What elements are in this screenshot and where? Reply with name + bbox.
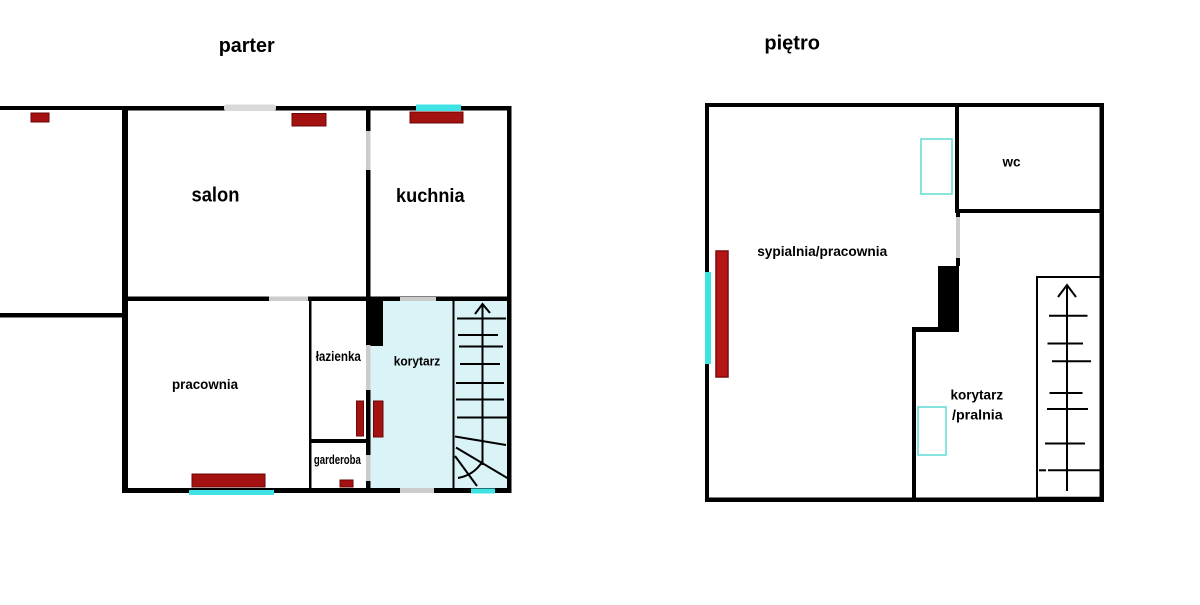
svg-text:kuchnia: kuchnia [396, 186, 465, 207]
svg-text:salon: salon [192, 185, 240, 207]
svg-text:korytarz: korytarz [394, 355, 441, 369]
svg-text:wc: wc [1002, 154, 1021, 170]
svg-text:pracownia: pracownia [172, 376, 238, 392]
svg-text:piętro: piętro [764, 33, 820, 55]
svg-text:parter: parter [219, 35, 275, 57]
svg-text:korytarz: korytarz [951, 387, 1004, 403]
svg-text:garderoba: garderoba [314, 452, 362, 467]
svg-text:sypialnia/pracownia: sypialnia/pracownia [757, 243, 887, 259]
svg-text:łazienka: łazienka [316, 349, 362, 364]
svg-text:/pralnia: /pralnia [952, 407, 1003, 423]
